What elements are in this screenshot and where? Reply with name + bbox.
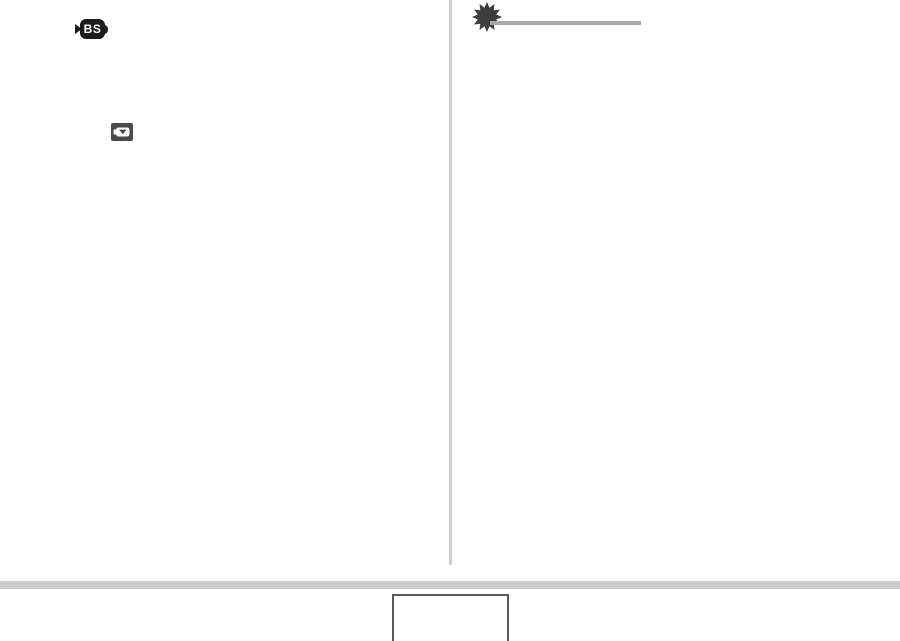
manual-page: BS xyxy=(0,0,900,641)
bestshot-lens-bump xyxy=(104,25,108,34)
camera-mode-icon xyxy=(111,123,133,141)
bestshot-badge-label: BS xyxy=(80,19,105,39)
footer-bar xyxy=(0,581,900,589)
starburst-icon xyxy=(472,2,502,32)
bestshot-mode-icon: BS xyxy=(75,19,108,40)
page-number-box xyxy=(392,594,509,641)
column-divider xyxy=(449,0,452,565)
heading-rule xyxy=(490,21,641,25)
